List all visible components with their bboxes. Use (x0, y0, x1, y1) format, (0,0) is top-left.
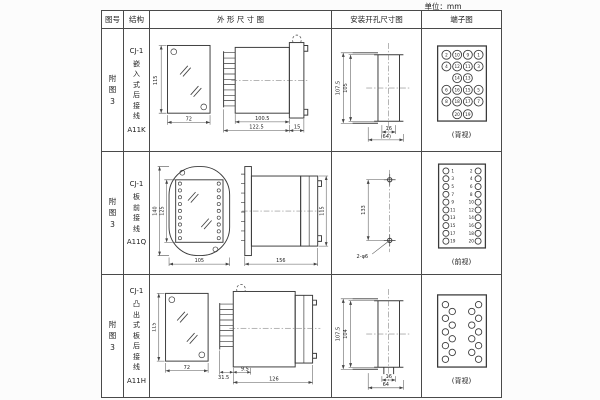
terminal-circle (475, 222, 481, 228)
dim-front-outer-height-r2: 140 (152, 206, 158, 215)
terminal-circle (475, 315, 481, 321)
terminal-number: 9 (466, 52, 469, 57)
terminal-circle (475, 191, 481, 197)
terminal-number: 3 (451, 176, 454, 181)
dim-front-width-r3: 72 (183, 365, 189, 371)
outline-diagram-r3: 115 72 (152, 277, 330, 393)
terminal-dot (178, 209, 181, 212)
cell-mounting-r2: 133 2-φ6 (332, 152, 422, 275)
terminal-number: 9 (451, 199, 454, 204)
dim-overall-width-r1: (64) (380, 134, 390, 140)
terminal-circle (442, 199, 448, 205)
cell-structure-r3: CJ-1 凸出式板后接线 A11H (124, 275, 150, 398)
terminal-circle (442, 206, 448, 212)
cell-fig-r3: 附图3 (102, 275, 124, 398)
header-mounting: 安装开孔尺寸图 (332, 11, 422, 29)
terminal-dot (178, 189, 181, 192)
code-r1: A11K (127, 126, 145, 134)
terminal-number: 15 (450, 222, 456, 227)
terminal-dot (178, 223, 181, 226)
terminal-number: 6 (469, 183, 472, 188)
terminal-number: 1 (451, 168, 454, 173)
model-r3: CJ-1 (130, 287, 144, 295)
terminal-dot (178, 202, 181, 205)
terminal-number: 16 (454, 87, 460, 92)
front-view-r2: 140 125 105 (152, 167, 229, 266)
dim-pin-depth-r3: 31.5 (218, 375, 229, 381)
terminal-number: 8 (445, 99, 448, 104)
table-row: 附图3 CJ-1 板前接线 A11Q (102, 152, 502, 275)
dim-hole-spacing-r2: 133 (360, 205, 366, 215)
screw-hole (200, 104, 206, 110)
front-terminal-dots-r2 (178, 182, 220, 240)
terminal-dot (217, 209, 220, 212)
terminal-circle (449, 335, 455, 341)
terminal-circle (442, 328, 448, 334)
dim-body-depth-r3: 126 (269, 376, 279, 382)
fig-no-r2: 附图3 (108, 196, 118, 230)
terminal-number: 5 (477, 87, 480, 92)
terminal-number: 18 (468, 230, 474, 235)
terminal-number: 19 (465, 111, 471, 116)
dim-side-length-r2: 156 (276, 258, 285, 264)
cell-terminal-r2: 1357911131517192468101214161820 (前视) (422, 152, 502, 275)
lifting-hook (236, 284, 245, 291)
terminal-circle (449, 321, 455, 327)
dim-slot-width-r3: 16 (385, 374, 391, 380)
terminal-circle (442, 214, 448, 220)
table-row: 附图3 CJ-1 凸出式板后接线 A11H (102, 275, 502, 398)
terminal-number: 16 (468, 222, 474, 227)
terminal-number: 18 (454, 99, 460, 104)
terminal-number: 8 (469, 191, 472, 196)
terminal-dot (217, 237, 220, 240)
dim-overall-width-r3: 64 (382, 382, 388, 388)
model-r1: CJ-1 (130, 47, 144, 55)
terminal-grid-svg-r2: 1357911131517192468101214161820 (423, 160, 501, 254)
terminal-circle (468, 308, 474, 314)
terminal-circle (475, 206, 481, 212)
terminal-circle (468, 335, 474, 341)
terminal-number: 5 (451, 183, 454, 188)
cell-structure-r2: CJ-1 板前接线 A11Q (124, 152, 150, 275)
table-row: 附图3 CJ-1 嵌入式后接线 A11K (102, 29, 502, 152)
terminal-number: 4 (445, 64, 448, 69)
terminal-number: 14 (454, 75, 460, 80)
structure-name-r1: 嵌入式后接线 (132, 59, 142, 122)
header-terminal: 端子图 (422, 11, 502, 29)
cell-outline-r1: 115 72 100. (150, 29, 332, 152)
terminal-number: 17 (450, 230, 456, 235)
front-view-r1: 115 72 (152, 45, 209, 124)
mounting-diagram-r3: 107.5 104 16 64 (333, 277, 421, 393)
terminal-circle (475, 199, 481, 205)
terminal-circle (442, 167, 448, 173)
terminal-circle (442, 315, 448, 321)
terminal-number: 11 (450, 207, 456, 212)
cell-terminal-r1: 2109141211314136161558181772019 (背视) (422, 29, 502, 152)
terminal-dot (217, 223, 220, 226)
terminal-number: 10 (468, 199, 474, 204)
terminal-number: 7 (477, 99, 480, 104)
terminal-circle (442, 342, 448, 348)
terminal-circle (475, 342, 481, 348)
outline-diagram-r2: 140 125 105 (152, 155, 330, 269)
terminal-circle (475, 356, 481, 362)
terminal-circle (442, 356, 448, 362)
terminal-circle (468, 349, 474, 355)
terminal-number: 15 (465, 87, 471, 92)
dim-front-width-r1: 72 (185, 116, 191, 122)
screw-hole (212, 247, 217, 252)
holes-label-r2: 2-φ6 (356, 254, 368, 260)
terminal-number: 4 (469, 176, 472, 181)
terminal-dot (178, 196, 181, 199)
screw-hole (170, 49, 176, 55)
terminal-number: 10 (454, 52, 460, 57)
terminal-caption-r3: (背视) (422, 376, 501, 386)
terminal-circle (475, 175, 481, 181)
dimension-table: 图号 结构 外 形 尺 寸 图 安装开孔尺寸图 端子图 附图3 CJ-1 嵌入式… (101, 10, 502, 398)
dim-side-height-r2: 115 (319, 206, 325, 215)
fig-no-r1: 附图3 (108, 73, 118, 107)
dim-outer-height-r3: 107.5 (335, 327, 341, 342)
terminal-number: 2 (469, 168, 472, 173)
terminal-circle (475, 214, 481, 220)
terminal-caption-r2: (前视) (422, 257, 501, 267)
cell-mounting-r1: 107.5 105 16 (64) (332, 29, 422, 152)
side-view-r1: 100.5 122.5 15 (223, 35, 308, 132)
terminal-number: 20 (468, 238, 474, 243)
terminal-grid-svg-r1: 2109141211314136161558181772019 (423, 41, 501, 127)
side-view-r2: 156 115 (241, 167, 328, 266)
dim-inner-height-r3: 104 (343, 329, 349, 339)
terminal-dot (178, 216, 181, 219)
front-view-r3: 115 72 (152, 293, 208, 372)
terminal-dot (217, 196, 220, 199)
terminal-dot (178, 237, 181, 240)
terminal-caption-r1: (背视) (422, 130, 501, 140)
screw-hole (168, 297, 174, 303)
header-structure: 结构 (124, 11, 150, 29)
terminal-number: 3 (477, 64, 480, 69)
terminal-dot (217, 189, 220, 192)
cell-fig-r1: 附图3 (102, 29, 124, 152)
mounting-diagram-r1: 107.5 105 16 (64) (333, 31, 421, 147)
terminal-circle (442, 238, 448, 244)
terminal-number: 12 (454, 64, 460, 69)
side-view-r3: 31.5 9.5 126 (218, 284, 320, 384)
terminal-circle (449, 349, 455, 355)
cell-outline-r2: 140 125 105 (150, 152, 332, 275)
terminal-circle (475, 301, 481, 307)
lifting-hook (292, 35, 301, 43)
dim-front-height-r1: 115 (152, 76, 158, 86)
outline-diagram-r1: 115 72 100. (152, 31, 330, 147)
terminal-circle (475, 328, 481, 334)
terminal-dot (178, 182, 181, 185)
terminal-number: 13 (465, 75, 471, 80)
terminal-circle (442, 222, 448, 228)
terminal-number: 17 (465, 99, 471, 104)
model-r2: CJ-1 (130, 180, 144, 188)
terminal-number: 7 (451, 191, 454, 196)
dim-front-width-r2: 105 (194, 258, 203, 264)
dim-front-inner-height-r2: 125 (159, 206, 165, 215)
terminal-dot (217, 182, 220, 185)
fig-no-r3: 附图3 (108, 319, 118, 353)
document-page: 单位：mm 图号 结构 外 形 尺 寸 图 安装开孔尺寸图 端子图 附图3 CJ… (0, 0, 600, 400)
code-r2: A11Q (127, 238, 146, 246)
terminal-dot (217, 230, 220, 233)
terminal-circle (468, 321, 474, 327)
mounting-diagram-r2: 133 2-φ6 (333, 154, 421, 270)
terminal-circle (475, 238, 481, 244)
terminal-dot (217, 216, 220, 219)
terminal-number: 14 (468, 215, 474, 220)
table-header-row: 图号 结构 外 形 尺 寸 图 安装开孔尺寸图 端子图 (102, 11, 502, 29)
terminal-circle (442, 230, 448, 236)
terminal-dot (178, 230, 181, 233)
terminal-circle (442, 191, 448, 197)
dim-flange-depth-r1: 15 (293, 125, 299, 131)
dim-total-depth-r1: 122.5 (249, 125, 263, 131)
dim-front-height-r3: 115 (152, 322, 157, 332)
cell-terminal-r3: (背视) (422, 275, 502, 398)
terminal-circle (442, 301, 448, 307)
structure-name-r3: 凸出式板后接线 (132, 299, 142, 373)
terminal-circle (475, 230, 481, 236)
terminal-number: 1 (477, 52, 480, 57)
terminal-grid-svg-r3 (423, 287, 501, 373)
code-r3: A11H (127, 377, 146, 385)
terminal-circle (449, 308, 455, 314)
terminal-number: 19 (450, 238, 456, 243)
terminal-number: 20 (454, 111, 460, 116)
cell-outline-r3: 115 72 (150, 275, 332, 398)
screw-hole (198, 352, 204, 358)
cell-fig-r2: 附图3 (102, 152, 124, 275)
cell-mounting-r3: 107.5 104 16 64 (332, 275, 422, 398)
dim-body-depth-r1: 100.5 (255, 116, 269, 122)
terminal-number: 11 (465, 64, 471, 69)
terminal-number: 12 (468, 207, 474, 212)
terminal-circle (475, 183, 481, 189)
dim-outer-height-r1: 107.5 (335, 81, 341, 96)
terminal-number: 2 (445, 52, 448, 57)
terminal-circle (442, 183, 448, 189)
dim-slot-width-r1: 16 (385, 126, 391, 132)
header-outline: 外 形 尺 寸 图 (150, 11, 332, 29)
header-fig: 图号 (102, 11, 124, 29)
terminal-number: 6 (445, 87, 448, 92)
structure-name-r2: 板前接线 (132, 192, 142, 234)
terminal-circle (475, 167, 481, 173)
dim-stub-depth-r3: 9.5 (240, 366, 248, 372)
terminal-circle (442, 175, 448, 181)
cell-structure-r1: CJ-1 嵌入式后接线 A11K (124, 29, 150, 152)
terminal-number: 13 (450, 215, 456, 220)
terminal-dot (217, 202, 220, 205)
dim-inner-height-r1: 105 (343, 83, 349, 93)
